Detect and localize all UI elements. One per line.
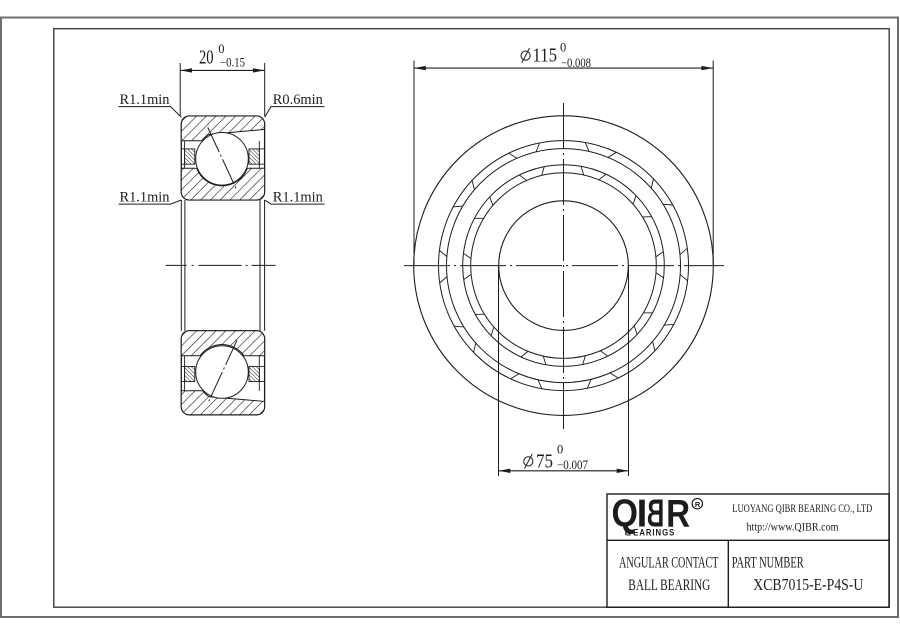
svg-text:R: R [695,500,701,509]
svg-text:−0.007: −0.007 [557,458,588,472]
svg-text:R1.1min: R1.1min [120,189,170,205]
svg-text:BALL BEARING: BALL BEARING [628,577,710,594]
svg-text:http://www.QIBR.com: http://www.QIBR.com [747,522,839,534]
svg-text:ANGULAR CONTACT: ANGULAR CONTACT [619,554,719,571]
svg-text:PART NUMBER: PART NUMBER [732,554,804,571]
svg-text:EARINGS: EARINGS [633,528,675,538]
svg-text:20: 20 [199,46,214,68]
svg-text:115: 115 [533,44,558,66]
svg-text:LUOYANG QIBR BEARING CO., LTD: LUOYANG QIBR BEARING CO., LTD [732,503,872,515]
svg-text:75: 75 [536,450,553,472]
svg-text:R0.6min: R0.6min [273,92,323,108]
svg-text:0: 0 [560,41,566,55]
svg-text:−0.15: −0.15 [220,55,245,69]
svg-text:0: 0 [557,443,563,457]
svg-text:XCB7015-E-P4S-U: XCB7015-E-P4S-U [753,575,863,594]
svg-text:R1.1min: R1.1min [120,92,170,108]
svg-text:R1.1min: R1.1min [273,189,323,205]
svg-text:B: B [625,528,631,538]
svg-text:−0.008: −0.008 [561,56,591,70]
svg-text:0: 0 [218,42,224,56]
